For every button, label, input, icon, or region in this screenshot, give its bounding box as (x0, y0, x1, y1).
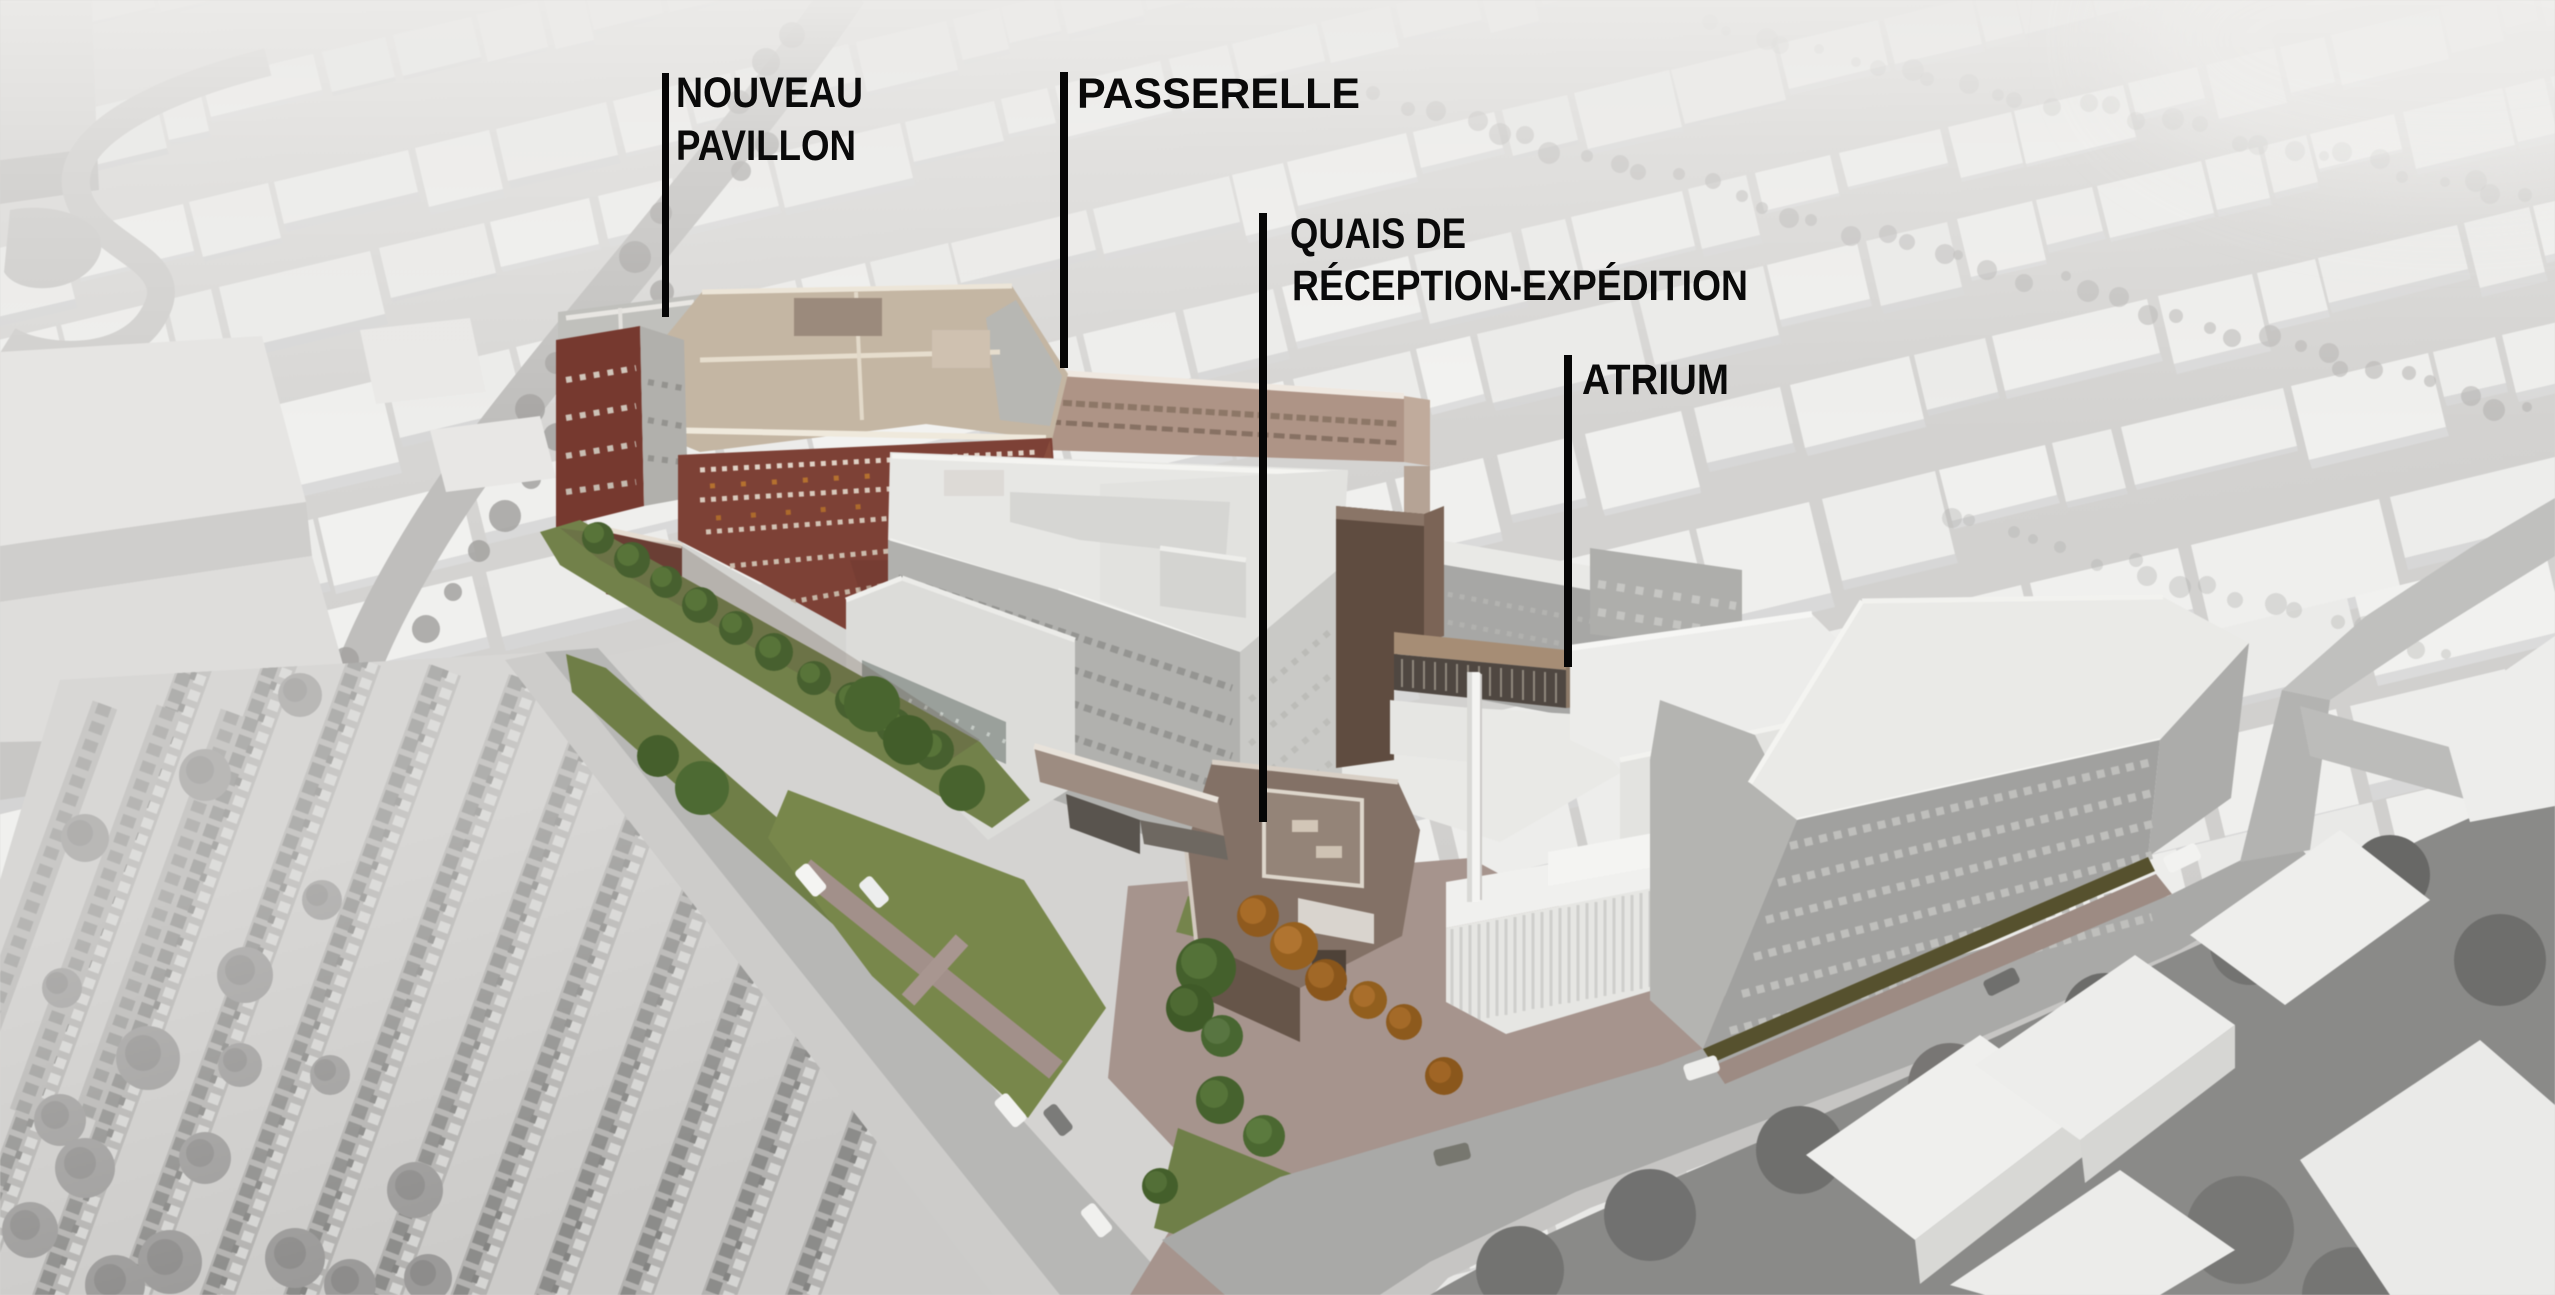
svg-text:ATRIUM: ATRIUM (1582, 356, 1729, 404)
svg-text:RÉCEPTION-EXPÉDITION: RÉCEPTION-EXPÉDITION (1292, 262, 1748, 310)
svg-text:NOUVEAU: NOUVEAU (676, 69, 863, 117)
svg-text:PAVILLON: PAVILLON (676, 122, 856, 170)
svg-text:QUAIS DE: QUAIS DE (1290, 210, 1466, 258)
svg-text:PASSERELLE: PASSERELLE (1077, 70, 1360, 118)
